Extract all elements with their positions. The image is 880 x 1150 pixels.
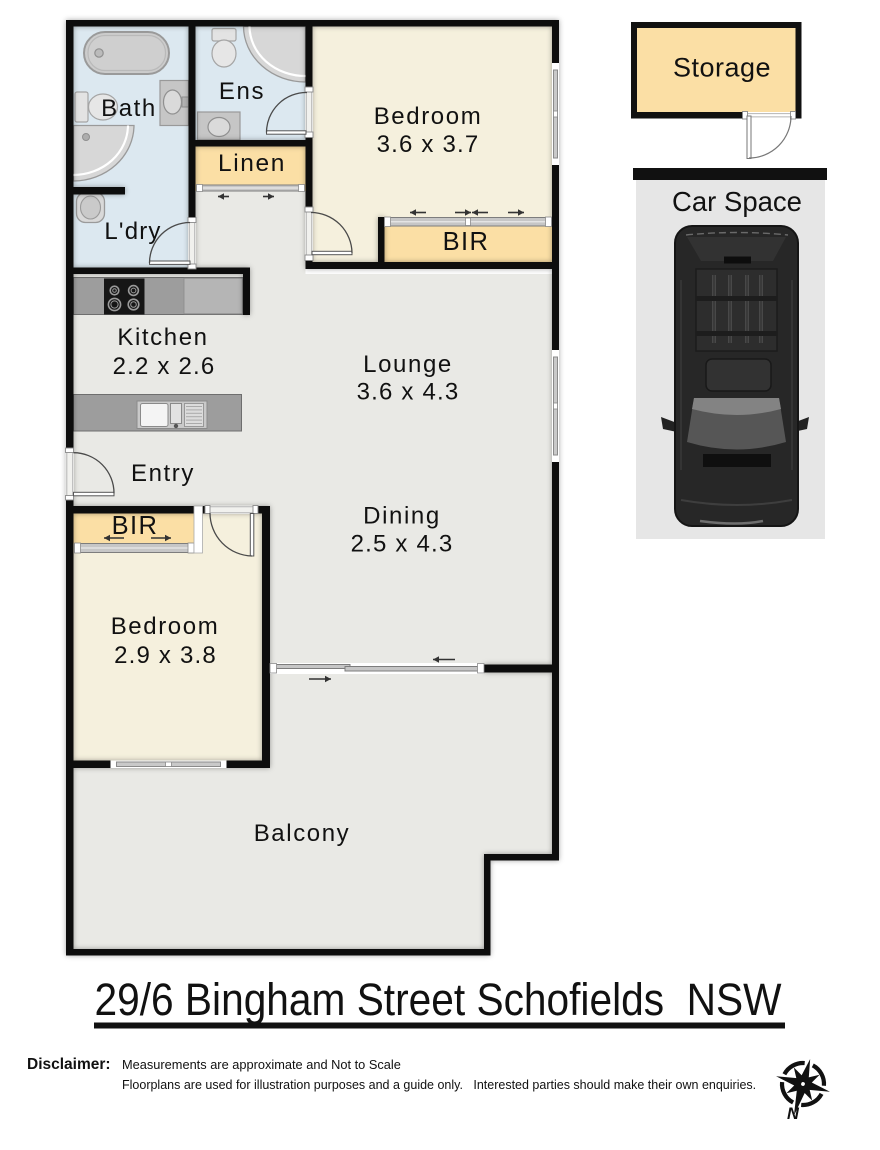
svg-text:Lounge: Lounge xyxy=(363,351,453,378)
svg-text:Linen: Linen xyxy=(218,150,286,177)
svg-text:N: N xyxy=(787,1105,800,1123)
svg-text:2.5 x 4.3: 2.5 x 4.3 xyxy=(351,531,454,558)
svg-text:3.6 x 4.3: 3.6 x 4.3 xyxy=(357,379,460,406)
svg-text:Dining: Dining xyxy=(363,503,441,530)
svg-text:Ens: Ens xyxy=(219,78,265,105)
svg-text:Entry: Entry xyxy=(131,460,195,487)
svg-text:Storage: Storage xyxy=(673,53,771,83)
svg-text:Kitchen: Kitchen xyxy=(117,324,208,351)
svg-text:Car Space: Car Space xyxy=(672,186,802,217)
svg-text:Floorplans are used for illust: Floorplans are used for illustration pur… xyxy=(122,1078,756,1092)
svg-text:Measurements are approximate a: Measurements are approximate and Not to … xyxy=(122,1057,401,1072)
svg-text:Bedroom: Bedroom xyxy=(374,103,483,130)
svg-text:BIR: BIR xyxy=(443,228,490,256)
svg-text:Bath: Bath xyxy=(101,95,157,122)
svg-text:2.9 x 3.8: 2.9 x 3.8 xyxy=(114,642,217,669)
svg-text:L'dry: L'dry xyxy=(104,218,161,245)
svg-text:3.6 x 3.7: 3.6 x 3.7 xyxy=(377,131,480,158)
svg-text:Disclaimer:: Disclaimer: xyxy=(27,1056,111,1073)
svg-text:29/6 Bingham Street Schofields: 29/6 Bingham Street Schofields NSW xyxy=(95,974,782,1025)
svg-text:Bedroom: Bedroom xyxy=(111,613,220,640)
svg-text:BIR: BIR xyxy=(112,512,159,540)
svg-text:Balcony: Balcony xyxy=(254,820,351,847)
svg-text:2.2 x 2.6: 2.2 x 2.6 xyxy=(113,353,216,380)
